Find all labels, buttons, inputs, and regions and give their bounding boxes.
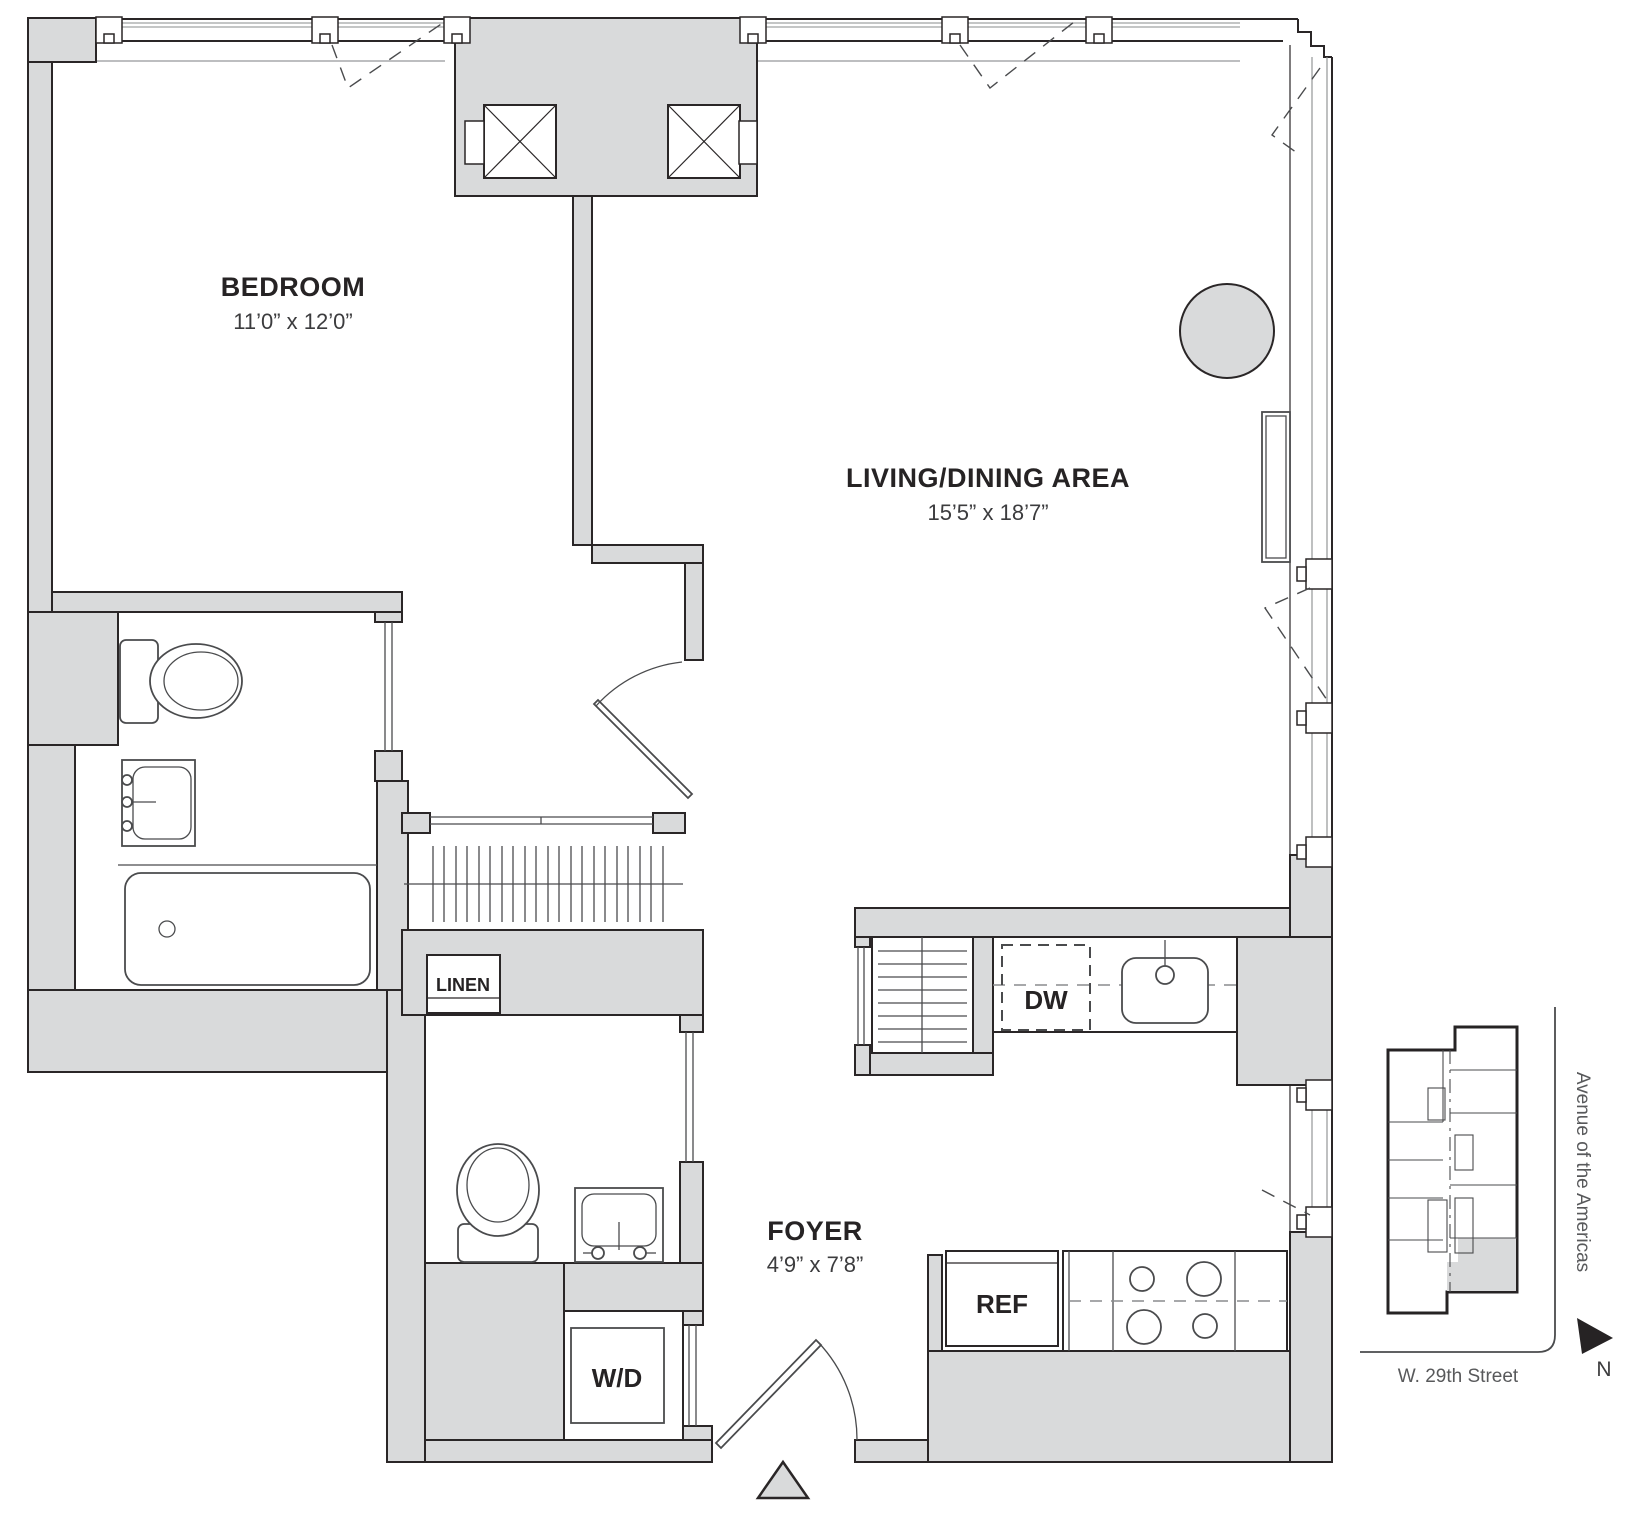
wall-west-lower <box>387 990 425 1462</box>
bathroom-door <box>385 622 392 751</box>
wd-jamb-top <box>683 1311 703 1325</box>
wall-south-entry <box>855 1440 928 1462</box>
entry-door-swing <box>818 1342 857 1440</box>
pantry-jamb-top <box>855 937 870 947</box>
wall-bath-west-upper <box>28 612 118 745</box>
mullion-icon <box>1086 17 1112 43</box>
lower-counter: REF <box>946 1251 1287 1351</box>
north-label: N <box>1596 1358 1611 1381</box>
bedroom-dimensions: 11’0” x 12’0” <box>233 309 352 334</box>
toilet-icon <box>120 640 242 723</box>
wall-bedroom-south <box>52 592 402 612</box>
foyer-dimensions: 4’9” x 7’8” <box>767 1252 864 1277</box>
wd-door <box>689 1325 696 1426</box>
wd-label: W/D <box>592 1363 643 1393</box>
casement-swing-icon <box>1265 588 1327 700</box>
key-plan: Avenue of the Americas W. 29th Street N <box>1360 1007 1613 1387</box>
casement-swing-icon <box>960 22 1074 88</box>
street-label: W. 29th Street <box>1398 1366 1519 1387</box>
bath2-jamb-top <box>680 1015 703 1032</box>
wall-south-left <box>425 1440 712 1462</box>
bathroom2-door <box>686 1032 693 1162</box>
shelf-unit-icon <box>872 937 973 1053</box>
wall-above-wd <box>564 1263 703 1311</box>
floor-plan-page: LINEN W/D <box>0 0 1645 1513</box>
north-arrow-icon: N <box>1577 1318 1613 1381</box>
washer-dryer-closet: W/D <box>564 1311 683 1440</box>
closet-hanging-rod <box>402 846 703 930</box>
wall-west <box>28 62 52 612</box>
walls <box>28 18 1332 1462</box>
bedroom-door-leaf <box>594 700 692 798</box>
wall-east-lower <box>1290 1232 1332 1462</box>
dw-label: DW <box>1024 985 1068 1015</box>
wall-kitchen-north <box>855 908 1290 937</box>
linen-closet: LINEN <box>427 955 500 1013</box>
hanger-hatch-icon <box>433 846 663 922</box>
radiator-icon <box>1262 412 1290 562</box>
mullion-icon <box>1297 703 1332 733</box>
entry-door-leaf <box>716 1340 821 1448</box>
wd-jamb-bottom <box>683 1426 712 1440</box>
wall-bedroom-living-divider <box>573 196 592 545</box>
elevator-door-right <box>739 121 757 164</box>
ref-label: REF <box>976 1289 1028 1319</box>
window-swing-indicators <box>332 20 1327 1215</box>
keyplan-unit-highlight <box>1458 1238 1516 1291</box>
corner-step <box>1298 19 1332 57</box>
pantry-door <box>858 947 864 1045</box>
bathroom-1 <box>118 640 377 985</box>
wall-under-shelf <box>870 1053 993 1075</box>
wall-bath-south <box>28 990 387 1072</box>
elevator-door-left <box>465 121 484 164</box>
sink-icon <box>575 1188 663 1262</box>
bedroom-label: BEDROOM <box>221 272 366 302</box>
closet-jamb-west <box>402 813 430 833</box>
wall-ref-stub <box>928 1255 942 1351</box>
mullion-icon <box>96 17 122 43</box>
column-icon <box>1180 284 1274 378</box>
avenue-label: Avenue of the Americas <box>1572 1072 1593 1272</box>
wall-foyer-west <box>425 1263 564 1440</box>
closet-jamb-east <box>653 813 685 833</box>
casement-swing-icon <box>1262 1190 1310 1215</box>
mullion-icon <box>942 17 968 43</box>
keyplan-unit-highlight-notch <box>1447 1262 1458 1291</box>
toilet-icon <box>457 1144 539 1262</box>
pantry-jamb-bottom <box>855 1045 870 1075</box>
room-labels: BEDROOM 11’0” x 12’0” LIVING/DINING AREA… <box>221 272 1130 1277</box>
mullion-icon <box>1297 559 1332 589</box>
elevator-core <box>455 18 757 196</box>
mullion-icon <box>444 17 470 43</box>
bath-door-jamb-top <box>375 612 402 622</box>
entry-marker-icon <box>758 1462 808 1498</box>
casement-swing-icon <box>332 20 447 88</box>
wall-kitchen-south <box>928 1351 1290 1462</box>
wall-corner-nw <box>28 18 96 62</box>
floor-plan-drawing: LINEN W/D <box>0 0 1645 1513</box>
mullion-icon <box>740 17 766 43</box>
foyer-label: FOYER <box>767 1216 863 1246</box>
bedroom-door-swing <box>596 662 682 706</box>
wall-hall-east <box>685 563 703 660</box>
wall-shelf-counter <box>973 937 993 1053</box>
living-label: LIVING/DINING AREA <box>846 463 1130 493</box>
wall-hall-jog <box>592 545 703 563</box>
wall-kitchen-east <box>1237 937 1332 1085</box>
upper-counter: DW <box>993 937 1237 1032</box>
closet-sliding-door <box>430 817 653 824</box>
bathroom-2 <box>457 1144 663 1262</box>
wall-bath-west-lower <box>28 745 75 990</box>
mullion-icon <box>312 17 338 43</box>
linen-label: LINEN <box>436 975 490 995</box>
casement-swing-icon <box>1272 68 1320 155</box>
sink-icon <box>122 760 195 846</box>
bath-door-jamb-bottom <box>375 751 402 781</box>
bathtub-icon <box>125 873 370 985</box>
living-dimensions: 15’5” x 18’7” <box>927 500 1048 525</box>
